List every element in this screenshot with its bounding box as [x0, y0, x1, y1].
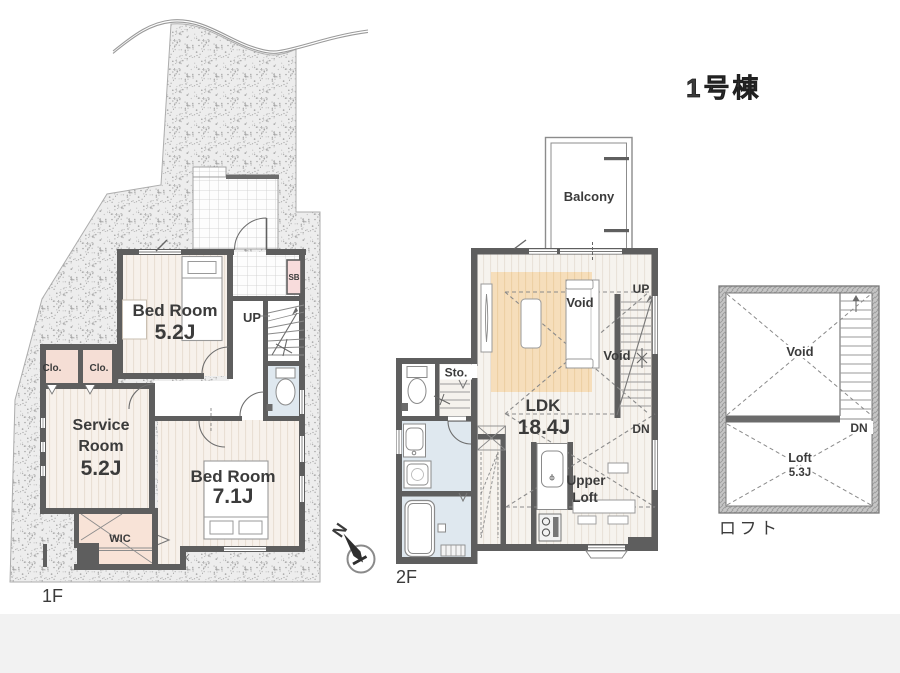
svg-text:Upper: Upper — [566, 473, 606, 488]
svg-text:DN: DN — [850, 421, 867, 435]
svg-text:Sto.: Sto. — [445, 366, 468, 380]
svg-text:Loft: Loft — [572, 490, 598, 505]
svg-text:Clo.: Clo. — [43, 363, 62, 374]
svg-text:5.2J: 5.2J — [155, 321, 196, 344]
svg-text:Room: Room — [78, 438, 123, 455]
svg-text:ロフト: ロフト — [719, 519, 781, 538]
svg-text:5.3J: 5.3J — [789, 467, 811, 479]
svg-text:UP: UP — [243, 310, 261, 325]
svg-text:UP: UP — [633, 282, 650, 296]
svg-text:SB: SB — [288, 273, 299, 282]
svg-text:DN: DN — [632, 422, 649, 436]
svg-text:2F: 2F — [396, 567, 417, 587]
svg-text:18.4J: 18.4J — [518, 416, 571, 439]
svg-text:Bed Room: Bed Room — [133, 301, 218, 320]
svg-text:Void: Void — [786, 344, 813, 359]
svg-text:5.2J: 5.2J — [81, 457, 122, 480]
svg-text:Service: Service — [73, 417, 130, 434]
svg-text:Clo.: Clo. — [90, 363, 109, 374]
svg-text:1F: 1F — [42, 586, 63, 606]
svg-text:Void: Void — [566, 295, 593, 310]
svg-text:Balcony: Balcony — [564, 189, 615, 204]
svg-text:Loft: Loft — [788, 451, 812, 465]
svg-text:Bed Room: Bed Room — [191, 467, 276, 486]
svg-text:1号棟: 1号棟 — [686, 73, 761, 103]
svg-text:WIC: WIC — [109, 533, 130, 545]
svg-text:Void: Void — [603, 348, 630, 363]
svg-text:LDK: LDK — [526, 396, 562, 415]
svg-text:7.1J: 7.1J — [213, 485, 254, 508]
